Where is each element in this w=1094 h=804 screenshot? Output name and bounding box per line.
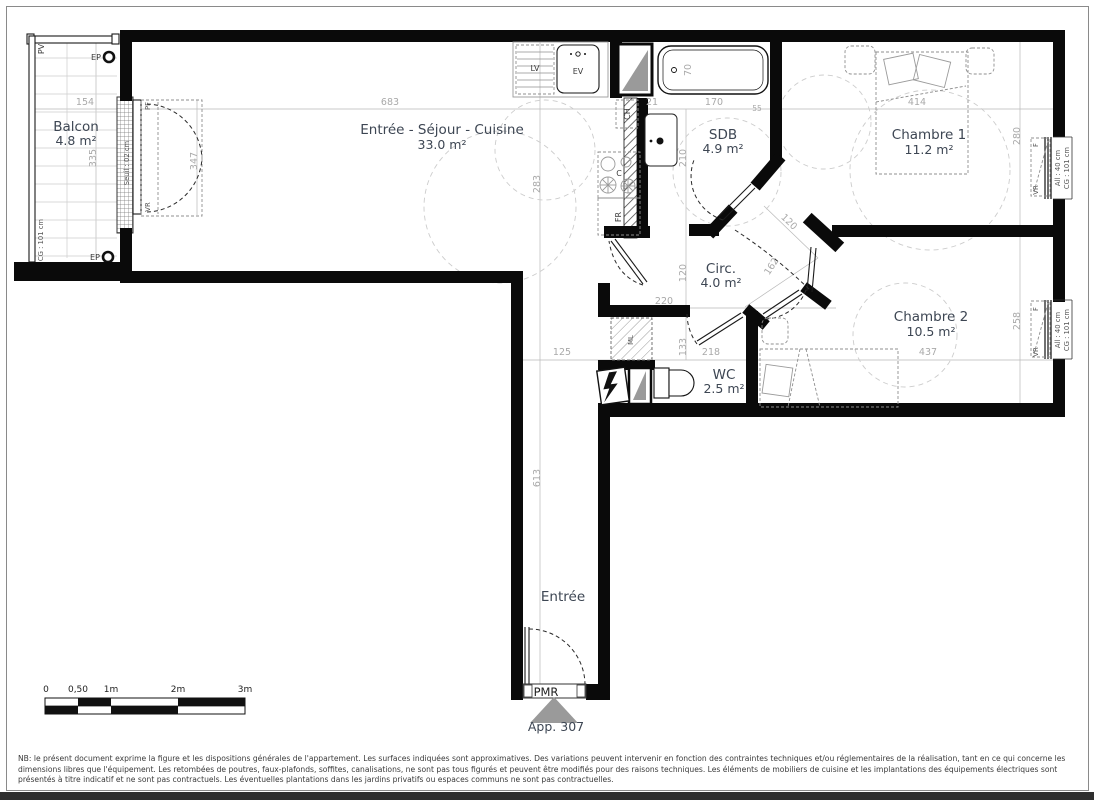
dim-120b: 120	[678, 264, 689, 282]
doors: PF VR	[141, 100, 816, 698]
pillow	[762, 364, 793, 396]
room-circ-area: 4.0 m²	[700, 275, 741, 290]
dim-120: 120	[778, 212, 799, 233]
scale-tick-1m: 1m	[104, 685, 119, 695]
vr-label: VR	[1032, 347, 1040, 357]
cooktop-label: C	[616, 169, 622, 178]
dim-347: 347	[189, 152, 200, 170]
living-circ-door	[609, 239, 647, 285]
floorplan-drawing: EP EP PV CG : 101 cm Seuil : 02 cm	[0, 0, 1094, 800]
dim-437: 437	[919, 347, 937, 358]
disclaimer-text: NB: le présent document exprime la figur…	[18, 754, 1080, 786]
allege-label: All : 40 cm	[1054, 312, 1062, 349]
ep-label: EP	[91, 53, 101, 62]
dim-21: 21	[646, 97, 658, 108]
tub-dim: 70	[683, 64, 694, 76]
vr-label: VR	[1032, 185, 1040, 195]
room-entree: Entrée	[541, 589, 585, 605]
dimension-labels: 683 154 21 170 55 414 335 347 283 210 12…	[76, 97, 1023, 487]
ep-label: EP	[90, 253, 100, 262]
furniture-chambre2	[760, 318, 898, 407]
room-sejour: Entrée - Séjour - Cuisine	[360, 122, 524, 138]
scale-bar: 0 0,50 1m 2m 3m	[43, 685, 252, 714]
room-wc-area: 2.5 m²	[703, 381, 744, 396]
room-chambre2-area: 10.5 m²	[907, 324, 956, 339]
scale-tick-0: 0	[43, 685, 49, 695]
washbasin	[645, 114, 677, 166]
balcony-top-rail	[29, 36, 118, 43]
room-labels: Balcon 4.8 m² Entrée - Séjour - Cuisine …	[53, 119, 968, 605]
dim-283: 283	[532, 175, 543, 193]
ch-label: CH	[623, 108, 632, 120]
bathtub: 70	[658, 46, 768, 94]
room-sejour-area: 33.0 m²	[418, 137, 467, 152]
room-balcon-area: 4.8 m²	[55, 133, 96, 148]
dim-258: 258	[1012, 312, 1023, 330]
scale-tick-3m: 3m	[238, 685, 253, 695]
kitchen-sink: EV	[557, 45, 599, 93]
dim-170: 170	[705, 97, 723, 108]
lv-label: LV	[530, 64, 540, 73]
dim-220: 220	[655, 296, 673, 307]
balcony-door-frame	[133, 100, 141, 214]
cg-label: CG : 101 cm	[1063, 147, 1071, 189]
pmr-label: PMR	[534, 685, 559, 699]
chambre2-window: F VR All : 40 cm CG : 101 cm	[1031, 300, 1072, 359]
ev-label: EV	[573, 67, 584, 76]
fr-label: FR	[614, 211, 623, 222]
wc-door	[687, 313, 743, 345]
pillow	[913, 55, 950, 88]
scale-tick-2m: 2m	[171, 685, 186, 695]
allege-label: All : 40 cm	[1054, 150, 1062, 187]
ep-icon	[104, 52, 114, 62]
dim-210: 210	[678, 149, 689, 167]
ep-icon	[103, 252, 113, 262]
pv-label: PV	[37, 43, 46, 54]
bottom-bar	[0, 792, 1094, 800]
room-chambre1: Chambre 1	[892, 127, 966, 143]
ml-label: ML	[627, 335, 635, 345]
dim-125: 125	[553, 347, 571, 358]
dim-613: 613	[532, 469, 543, 487]
dim-154: 154	[76, 97, 94, 108]
pf-label: PF	[144, 102, 152, 110]
room-chambre2: Chambre 2	[894, 309, 968, 325]
dim-162: 162	[762, 256, 781, 277]
dim-335: 335	[88, 149, 99, 167]
chambre2-door	[763, 290, 806, 319]
room-sdb-area: 4.9 m²	[702, 141, 743, 156]
balcony-left-rail	[29, 36, 35, 262]
shaft-top	[618, 44, 652, 95]
f-label: F	[1032, 307, 1040, 311]
ep-downpipe-top: EP	[91, 52, 114, 62]
f-label: F	[1032, 143, 1040, 147]
vr-label: VR	[144, 202, 152, 212]
dim-683: 683	[381, 97, 399, 108]
dim-280: 280	[1012, 127, 1023, 145]
dim-218: 218	[702, 347, 720, 358]
scale-tick-050: 0,50	[68, 685, 88, 695]
apartment-number: App. 307	[528, 719, 584, 734]
chambre1-window: F VR All : 40 cm CG : 101 cm	[1031, 137, 1072, 199]
dim-133: 133	[678, 338, 689, 356]
shaft-wc	[629, 368, 651, 404]
dim-414: 414	[908, 97, 926, 108]
seuil-label: Seuil : 02 cm	[123, 140, 131, 185]
room-chambre1-area: 11.2 m²	[905, 142, 954, 157]
cg-label: CG : 101 cm	[37, 219, 45, 261]
floorplan-page: EP EP PV CG : 101 cm Seuil : 02 cm	[0, 0, 1094, 800]
washing-machine: ML	[611, 318, 652, 360]
cg-label: CG : 101 cm	[1063, 309, 1071, 351]
ep-downpipe-bottom: EP	[90, 252, 113, 262]
toilet	[654, 368, 694, 398]
balcony-deck-lines	[35, 42, 117, 258]
electrical-panel	[597, 367, 629, 405]
dishwasher: LV	[516, 45, 554, 94]
dim-55: 55	[752, 104, 762, 113]
